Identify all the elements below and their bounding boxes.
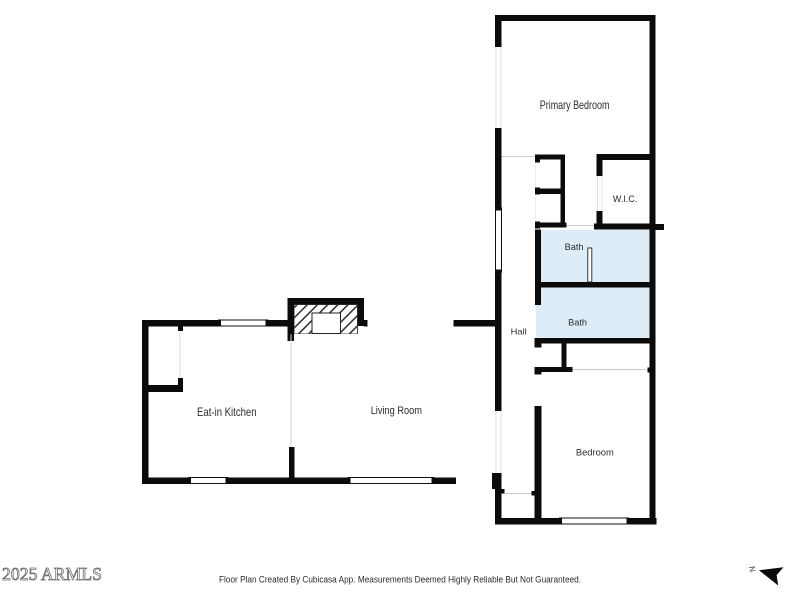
svg-text:Primary Bedroom: Primary Bedroom xyxy=(540,99,610,112)
svg-text:Bedroom: Bedroom xyxy=(576,447,614,458)
svg-text:Eat-in Kitchen: Eat-in Kitchen xyxy=(197,406,257,419)
svg-text:Floor Plan Created By Cubicasa: Floor Plan Created By Cubicasa App. Meas… xyxy=(219,575,581,585)
svg-text:2025 ARMLS: 2025 ARMLS xyxy=(2,564,102,584)
svg-text:Bath: Bath xyxy=(565,242,584,252)
svg-text:Bath: Bath xyxy=(568,318,587,328)
svg-text:W.I.C.: W.I.C. xyxy=(613,194,637,205)
svg-text:Living Room: Living Room xyxy=(371,405,422,417)
svg-text:Hall: Hall xyxy=(511,328,527,337)
svg-text:N: N xyxy=(748,565,758,572)
